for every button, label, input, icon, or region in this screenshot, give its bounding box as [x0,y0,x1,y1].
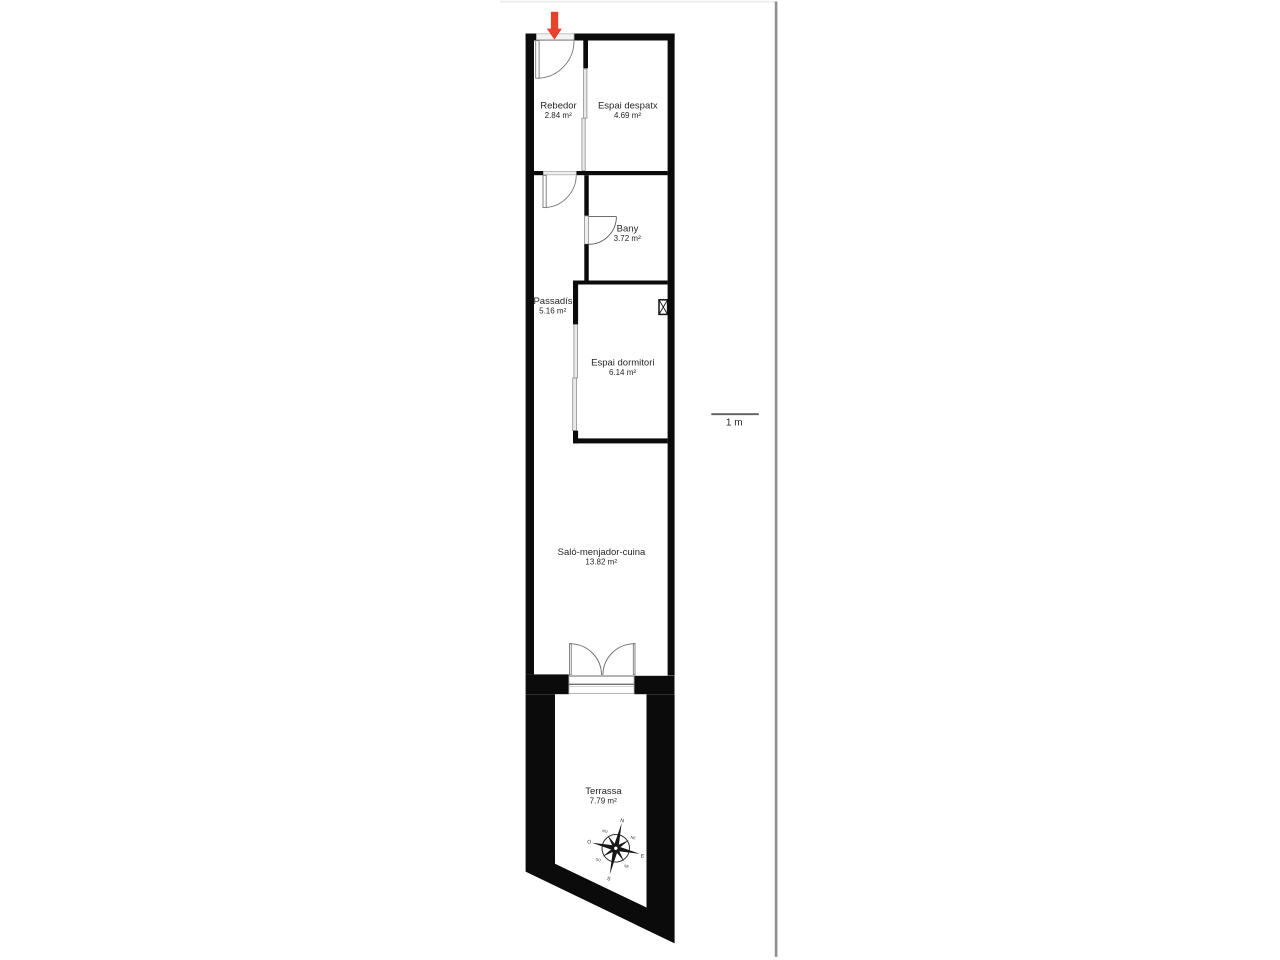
svg-text:Passadís: Passadís [533,296,572,307]
svg-text:3.72 m²: 3.72 m² [614,234,641,243]
svg-text:Terrassa: Terrassa [585,786,622,797]
svg-text:Espai dormitori: Espai dormitori [591,357,654,368]
svg-text:2.84 m²: 2.84 m² [545,111,572,120]
svg-text:Rebedor: Rebedor [540,101,576,112]
svg-text:5.16 m²: 5.16 m² [539,306,566,315]
svg-text:4.69 m²: 4.69 m² [614,111,641,120]
svg-text:1 m: 1 m [726,417,743,428]
svg-text:7.79 m²: 7.79 m² [590,796,617,805]
svg-text:Bany: Bany [617,224,639,235]
svg-text:6.14 m²: 6.14 m² [609,368,636,377]
svg-text:Saló-menjador-cuina: Saló-menjador-cuina [558,547,646,558]
svg-text:13.82 m²: 13.82 m² [585,558,617,567]
svg-text:Espai despatx: Espai despatx [598,101,658,112]
